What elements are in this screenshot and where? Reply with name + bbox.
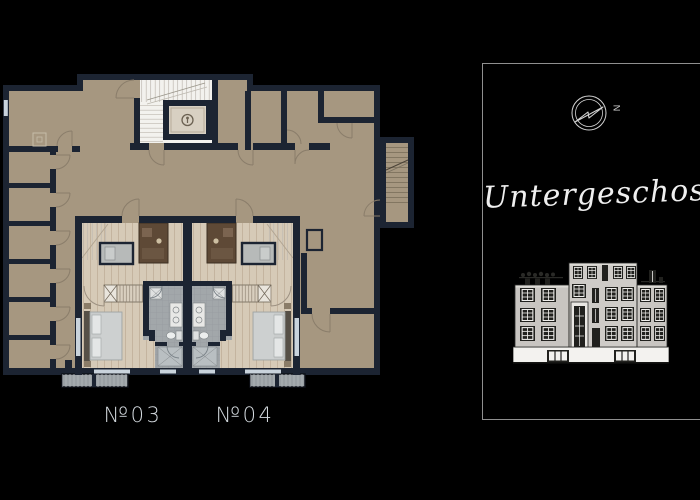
elevator xyxy=(163,100,212,140)
washer-icon xyxy=(150,288,162,299)
kitchenette-icon xyxy=(139,223,168,263)
compass-north-label: N xyxy=(611,105,621,112)
page: №03 №04 N Untergeschoss xyxy=(0,0,700,500)
wardrobe-icon xyxy=(104,285,143,302)
base-window xyxy=(547,350,569,362)
building-elevation-icon xyxy=(513,262,669,364)
sink-icon xyxy=(170,303,182,327)
legend-panel: N Untergeschoss xyxy=(482,63,700,420)
floorplan xyxy=(3,74,414,387)
compass: N xyxy=(483,91,700,143)
utility-unit xyxy=(100,243,133,264)
unit-label-04: №04 xyxy=(185,403,305,427)
base-window xyxy=(614,350,636,362)
apartment-03 xyxy=(82,199,183,374)
floor-title: Untergeschoss xyxy=(482,173,700,216)
north-arrow-icon xyxy=(554,91,624,137)
bed-icon xyxy=(84,303,122,367)
unit-label-03: №03 xyxy=(73,403,193,427)
light-well xyxy=(250,374,305,387)
light-well xyxy=(62,374,128,387)
apartment-04 xyxy=(192,199,293,374)
shower-icon xyxy=(158,347,182,366)
